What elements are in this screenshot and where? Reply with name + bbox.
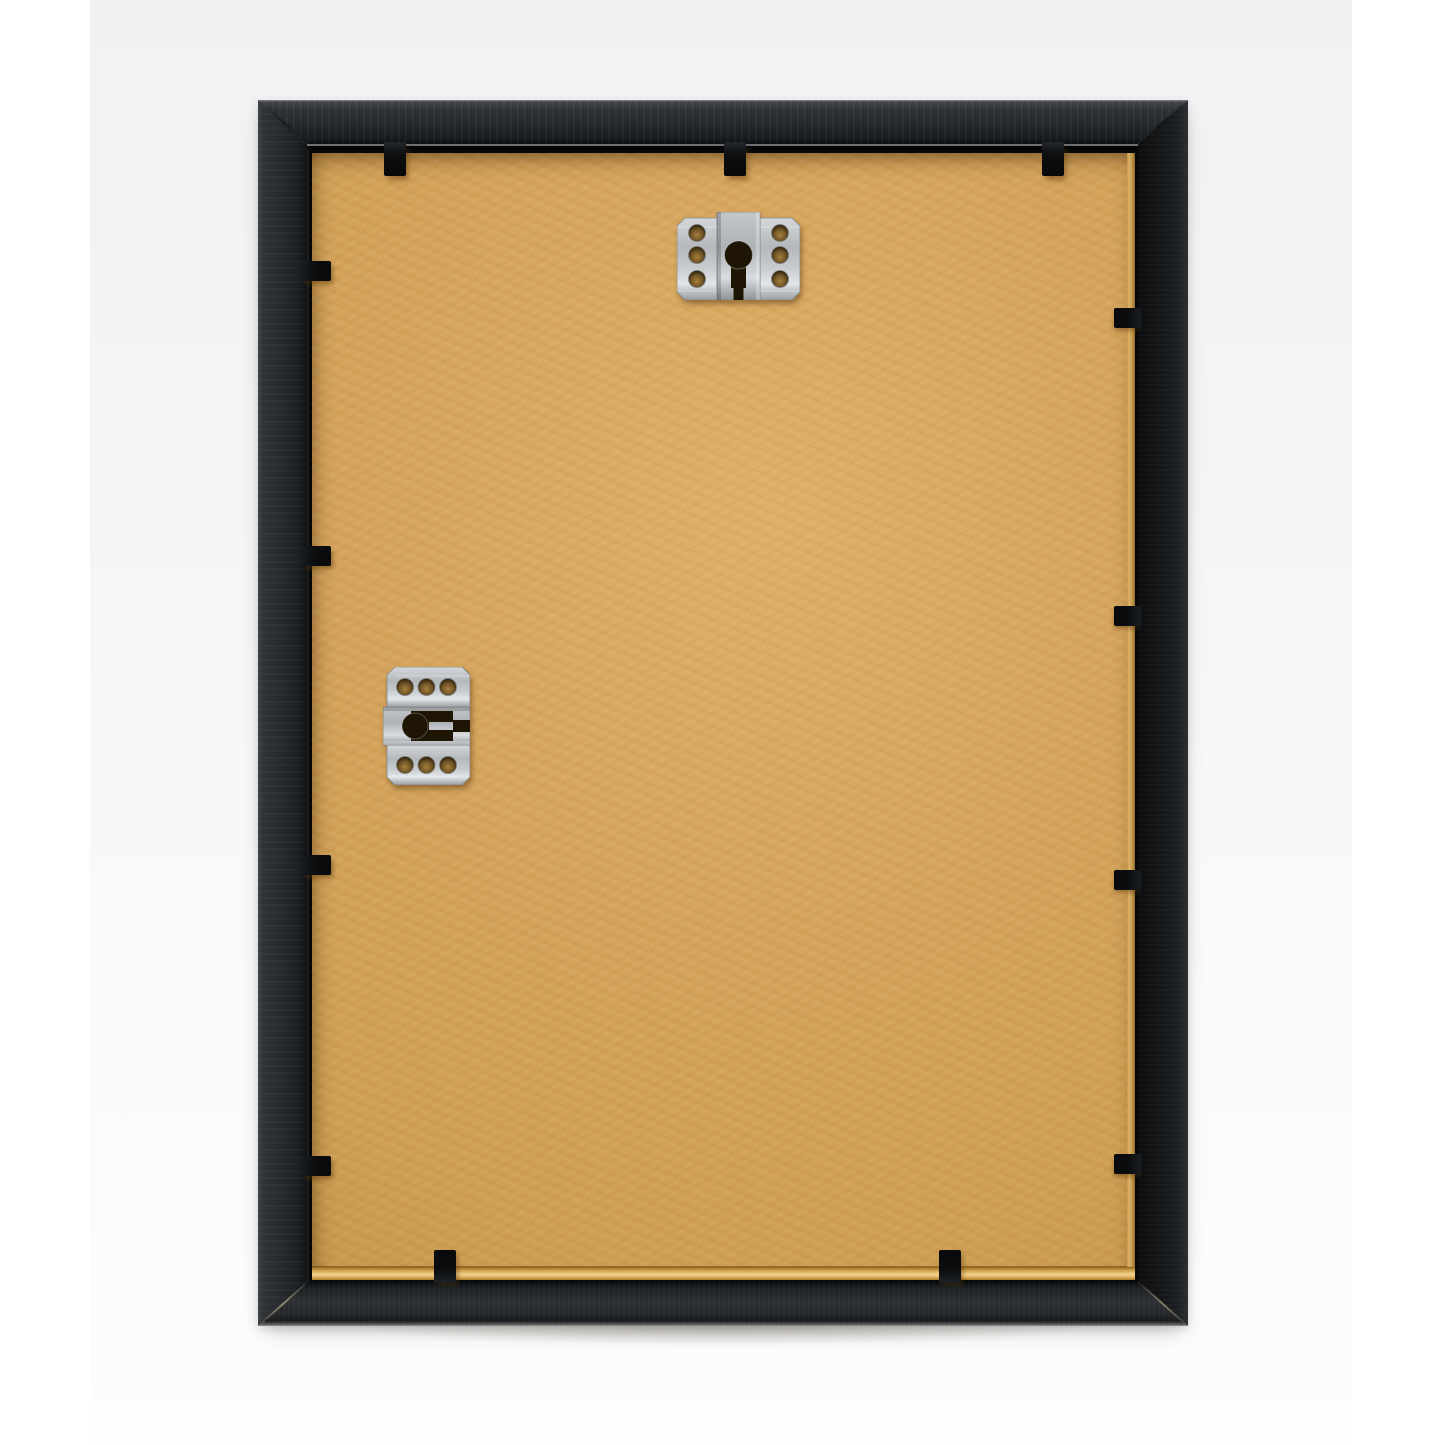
flexi-tab-right: [1114, 1154, 1141, 1174]
frame-rail-right: [1138, 100, 1188, 1326]
flexi-tab-top: [724, 142, 746, 176]
flexi-tab-top: [384, 142, 406, 176]
keyhole-hanger-plate-top: [677, 212, 800, 300]
frame: [258, 100, 1188, 1326]
flexi-tab-right: [1114, 606, 1141, 626]
flexi-tab-right: [1114, 308, 1141, 328]
flexi-tab-left: [301, 261, 331, 281]
frame-floor-shadow: [262, 1322, 1184, 1352]
flexi-tab-right: [1114, 870, 1141, 890]
flexi-tab-left: [301, 855, 331, 875]
flexi-tab-top: [1042, 142, 1064, 176]
keyhole-hanger-plate-side: [383, 667, 470, 785]
flexi-tab-left: [301, 1156, 331, 1176]
flexi-tab-bottom: [939, 1250, 961, 1283]
flexi-tab-bottom: [434, 1250, 456, 1283]
frame-rail-left: [258, 100, 307, 1326]
flexi-tab-left: [301, 546, 331, 566]
frame-rail-top: [258, 100, 1188, 144]
frame-rail-bottom: [258, 1282, 1188, 1326]
